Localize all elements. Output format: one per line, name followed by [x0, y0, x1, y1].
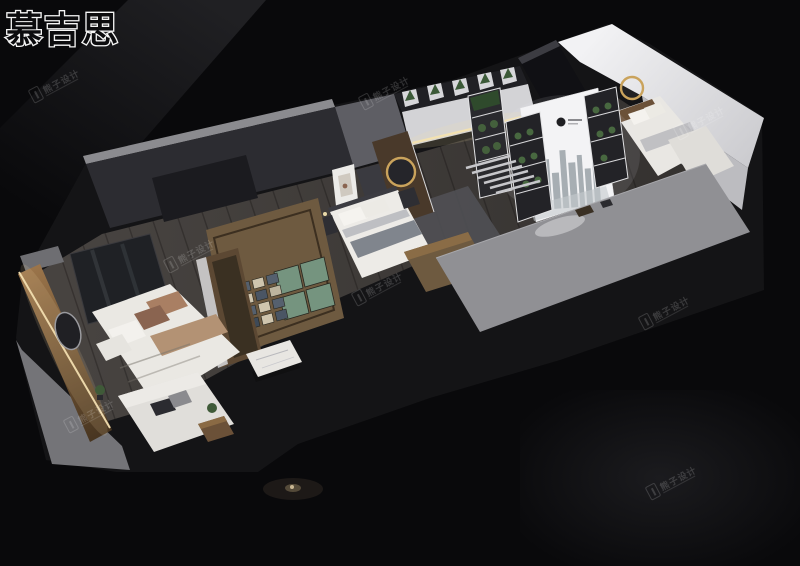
render-canvas: 熊子设计 熊子设计 熊子设计 熊子设计 熊子设计 熊子设计 熊子设计 熊子设计 …: [0, 0, 800, 566]
panel-logo-icon: [557, 118, 566, 127]
gold-mirror: [387, 158, 415, 186]
potted-plant: [207, 403, 217, 413]
floor-glow: [263, 478, 323, 500]
gold-ring-light: [621, 77, 643, 99]
brand-text: 慕吉思: [6, 9, 120, 50]
brand-logo: 慕吉思: [0, 0, 220, 60]
